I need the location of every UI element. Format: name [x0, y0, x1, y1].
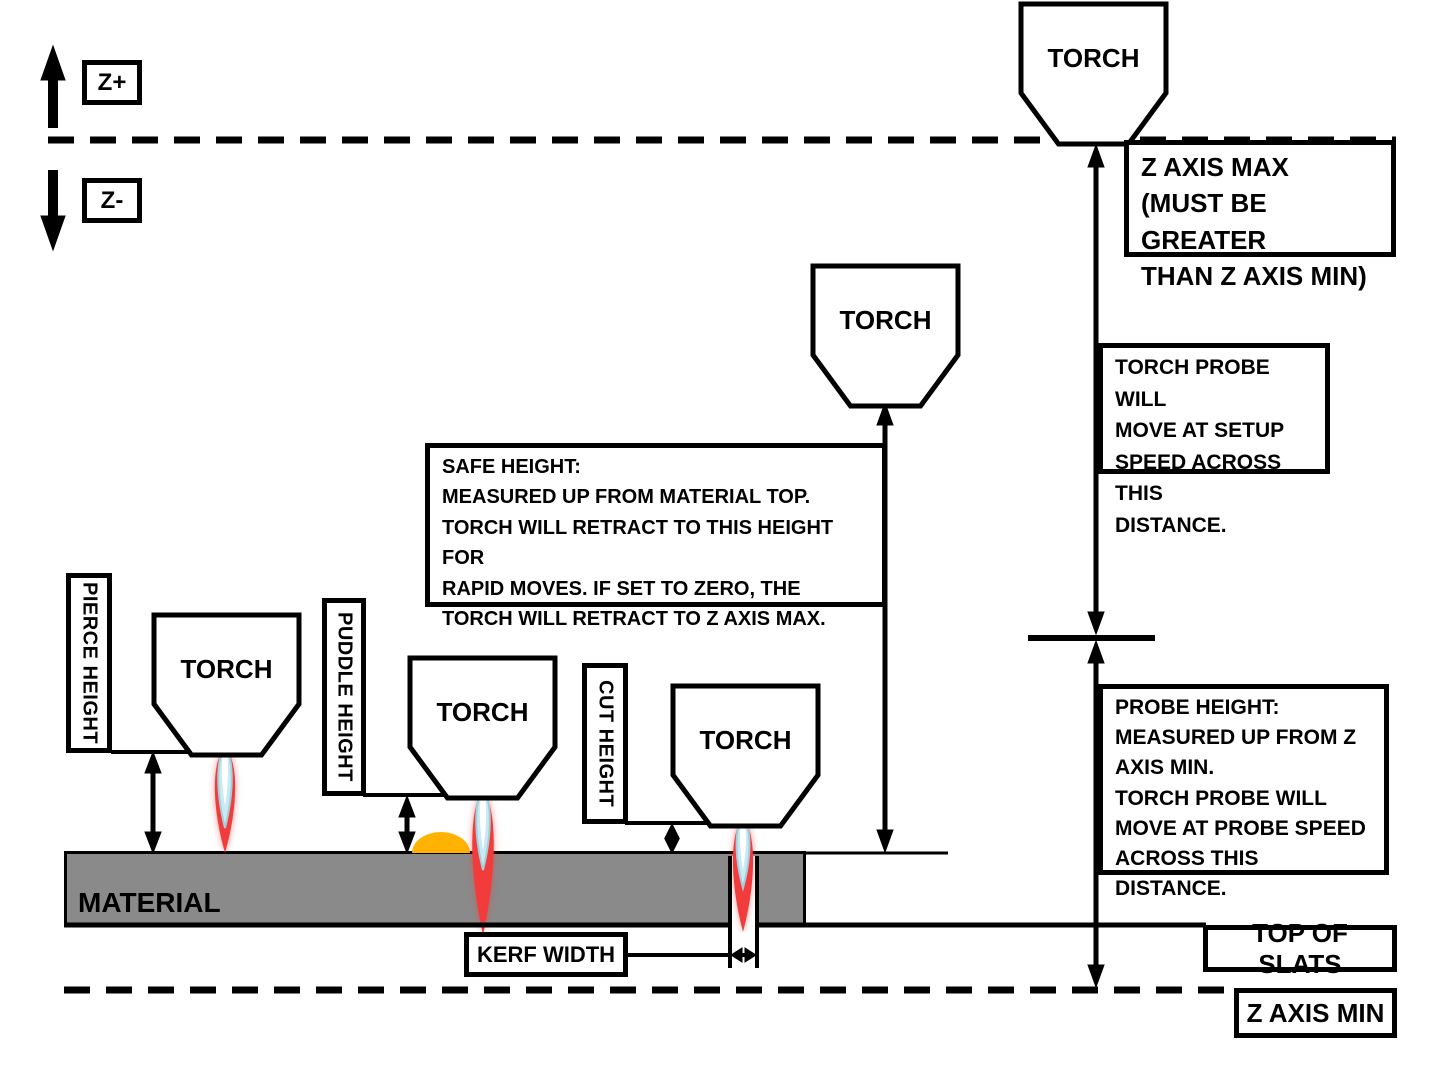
- setup-speed-note: TORCH PROBE WILL MOVE AT SETUP SPEED ACR…: [1098, 343, 1330, 474]
- torch-label: TORCH: [151, 654, 302, 685]
- cut-height-label: CUT HEIGHT: [582, 663, 628, 824]
- molten-puddle: [412, 832, 470, 853]
- z-axis-min-label: Z AXIS MIN: [1234, 988, 1397, 1038]
- probe-height-note: PROBE HEIGHT: MEASURED UP FROM Z AXIS MI…: [1098, 684, 1389, 875]
- puddle-height-label: PUDDLE HEIGHT: [322, 598, 366, 796]
- top-of-slats-label: TOP OF SLATS: [1203, 925, 1397, 972]
- flame-pierce: [215, 748, 235, 853]
- safe-height-note: SAFE HEIGHT: MEASURED UP FROM MATERIAL T…: [425, 443, 887, 607]
- z-plus-box: Z+: [82, 60, 142, 105]
- torch-height-diagram: MATERIAL: [0, 0, 1436, 1078]
- torch-at-puddle-height: TORCH: [407, 655, 558, 801]
- torch-at-z-max: TORCH: [1018, 1, 1169, 147]
- torch-at-cut-height: TORCH: [670, 683, 821, 829]
- z-axis-max-note: Z AXIS MAX (MUST BE GREATER THAN Z AXIS …: [1124, 140, 1396, 257]
- torch-label: TORCH: [670, 725, 821, 756]
- torch-at-pierce-height: TORCH: [151, 612, 302, 758]
- material-label: MATERIAL: [78, 887, 221, 919]
- kerf-cut-slot: [729, 856, 758, 926]
- torch-label: TORCH: [1018, 43, 1169, 74]
- z-minus-label: Z-: [101, 187, 124, 215]
- pierce-height-label: PIERCE HEIGHT: [66, 573, 112, 753]
- torch-label: TORCH: [810, 305, 961, 336]
- z-minus-box: Z-: [82, 178, 142, 223]
- kerf-width-label: KERF WIDTH: [464, 932, 628, 977]
- torch-at-safe-height: TORCH: [810, 263, 961, 409]
- torch-label: TORCH: [407, 697, 558, 728]
- z-plus-label: Z+: [98, 69, 127, 97]
